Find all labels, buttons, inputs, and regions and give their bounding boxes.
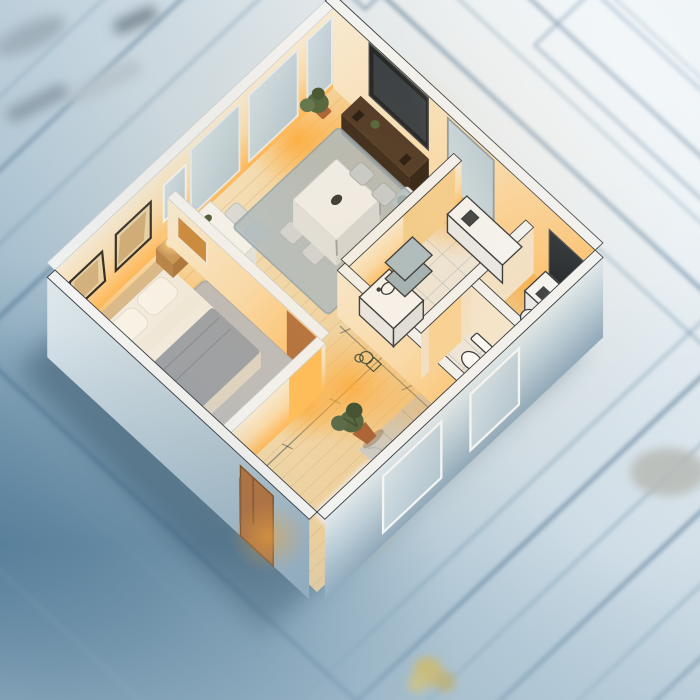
architectural-render bbox=[0, 0, 700, 700]
render-canvas bbox=[0, 0, 700, 700]
depth-of-field-haze bbox=[0, 0, 700, 700]
